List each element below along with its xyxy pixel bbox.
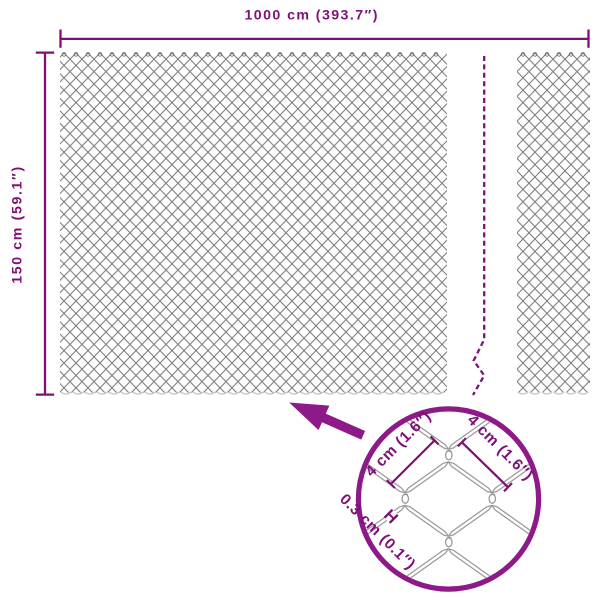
svg-text:150 cm (59.1″): 150 cm (59.1″) xyxy=(9,165,25,284)
svg-text:1000 cm (393.7″): 1000 cm (393.7″) xyxy=(244,7,378,23)
